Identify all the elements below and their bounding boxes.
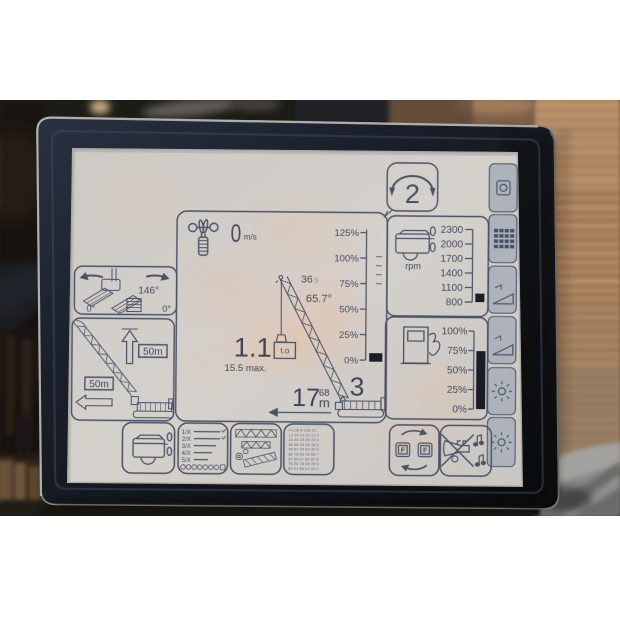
svg-text:2: 2 (405, 178, 420, 209)
svg-text:146°: 146° (138, 286, 159, 297)
svg-text:0°: 0° (86, 304, 95, 314)
svg-text:3/X: 3/X (182, 444, 191, 450)
svg-text:F: F (423, 448, 428, 455)
svg-text:75%: 75% (339, 279, 359, 290)
svg-text:89 01 89 01 89 0: 89 01 89 01 89 0 (288, 466, 319, 471)
svg-text:5/X: 5/X (182, 458, 191, 464)
svg-text:0%: 0% (452, 404, 467, 415)
svg-text:F: F (401, 447, 406, 454)
svg-text:4/X: 4/X (182, 451, 191, 457)
svg-text:65.7°: 65.7° (306, 293, 332, 305)
svg-text:rpm: rpm (405, 261, 421, 271)
svg-text:2/X: 2/X (182, 437, 191, 443)
svg-text:50%: 50% (447, 365, 467, 376)
svg-text:2300: 2300 (441, 225, 464, 236)
svg-text:25%: 25% (447, 385, 467, 396)
svg-text:3: 3 (350, 372, 365, 402)
svg-text:2000: 2000 (441, 239, 464, 250)
svg-text:t.o: t.o (280, 346, 290, 355)
svg-text:0°: 0° (162, 304, 171, 314)
svg-text:50m: 50m (89, 379, 109, 390)
svg-text:15.5 max.: 15.5 max. (224, 363, 266, 374)
svg-text:75%: 75% (447, 346, 467, 357)
svg-text:125%: 125% (334, 228, 359, 239)
svg-text:50%: 50% (339, 304, 359, 315)
svg-text:0: 0 (230, 220, 241, 248)
svg-text:1/X: 1/X (182, 430, 191, 436)
svg-text:m/s: m/s (244, 233, 257, 242)
svg-text:1.1: 1.1 (234, 332, 272, 363)
svg-text:17: 17 (292, 384, 320, 412)
svg-text:0%: 0% (344, 355, 358, 366)
svg-text:m: m (319, 395, 330, 410)
svg-text:100%: 100% (442, 326, 468, 337)
svg-text:36: 36 (301, 274, 313, 286)
svg-text:1100: 1100 (441, 283, 463, 294)
svg-text:800: 800 (446, 297, 463, 308)
svg-text:50m: 50m (143, 347, 163, 358)
svg-text:25%: 25% (339, 330, 359, 341)
svg-text:1700: 1700 (440, 254, 463, 265)
svg-text:1400: 1400 (440, 268, 463, 279)
svg-text:100%: 100% (334, 253, 359, 264)
svg-text:s: s (314, 275, 319, 285)
